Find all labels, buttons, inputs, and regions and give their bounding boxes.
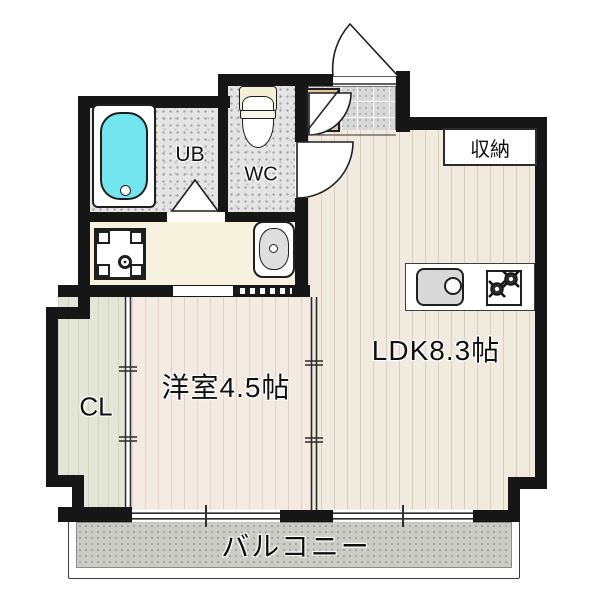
vanity-sink-drain: [269, 244, 278, 253]
western-room-label: 洋室4.5帖: [162, 366, 291, 406]
dotted-opening: [235, 288, 292, 294]
storage-label-box: 収納: [443, 128, 537, 166]
wall: [280, 510, 333, 522]
washing-machine-pan: [94, 228, 146, 280]
ub-label: UB: [175, 143, 204, 167]
wall: [46, 307, 58, 487]
kitchen-sink-drain: [444, 277, 462, 295]
wall: [218, 74, 333, 86]
shoe-cabinet: [306, 88, 340, 132]
wall: [473, 510, 520, 522]
entrance-door-swing: [333, 24, 398, 84]
stove: [486, 270, 522, 306]
wall: [535, 117, 547, 489]
wall: [58, 507, 132, 522]
west-room-opening: [173, 286, 233, 296]
ldk-floor-lower: [308, 477, 508, 510]
closet-label: CL: [79, 392, 112, 423]
ldk-label: LDK8.3帖: [372, 329, 500, 369]
toilet-seat-hinge: [240, 110, 276, 119]
bathtub-drain: [120, 185, 131, 196]
storage-label: 収納: [470, 133, 510, 162]
wall: [218, 74, 228, 212]
wc-label: WC: [244, 164, 277, 187]
bath-door-opening: [167, 212, 225, 222]
floor-plan: 収納: [0, 0, 600, 600]
balcony-label: バルコニー: [221, 525, 370, 565]
toilet-bowl: [242, 96, 274, 148]
